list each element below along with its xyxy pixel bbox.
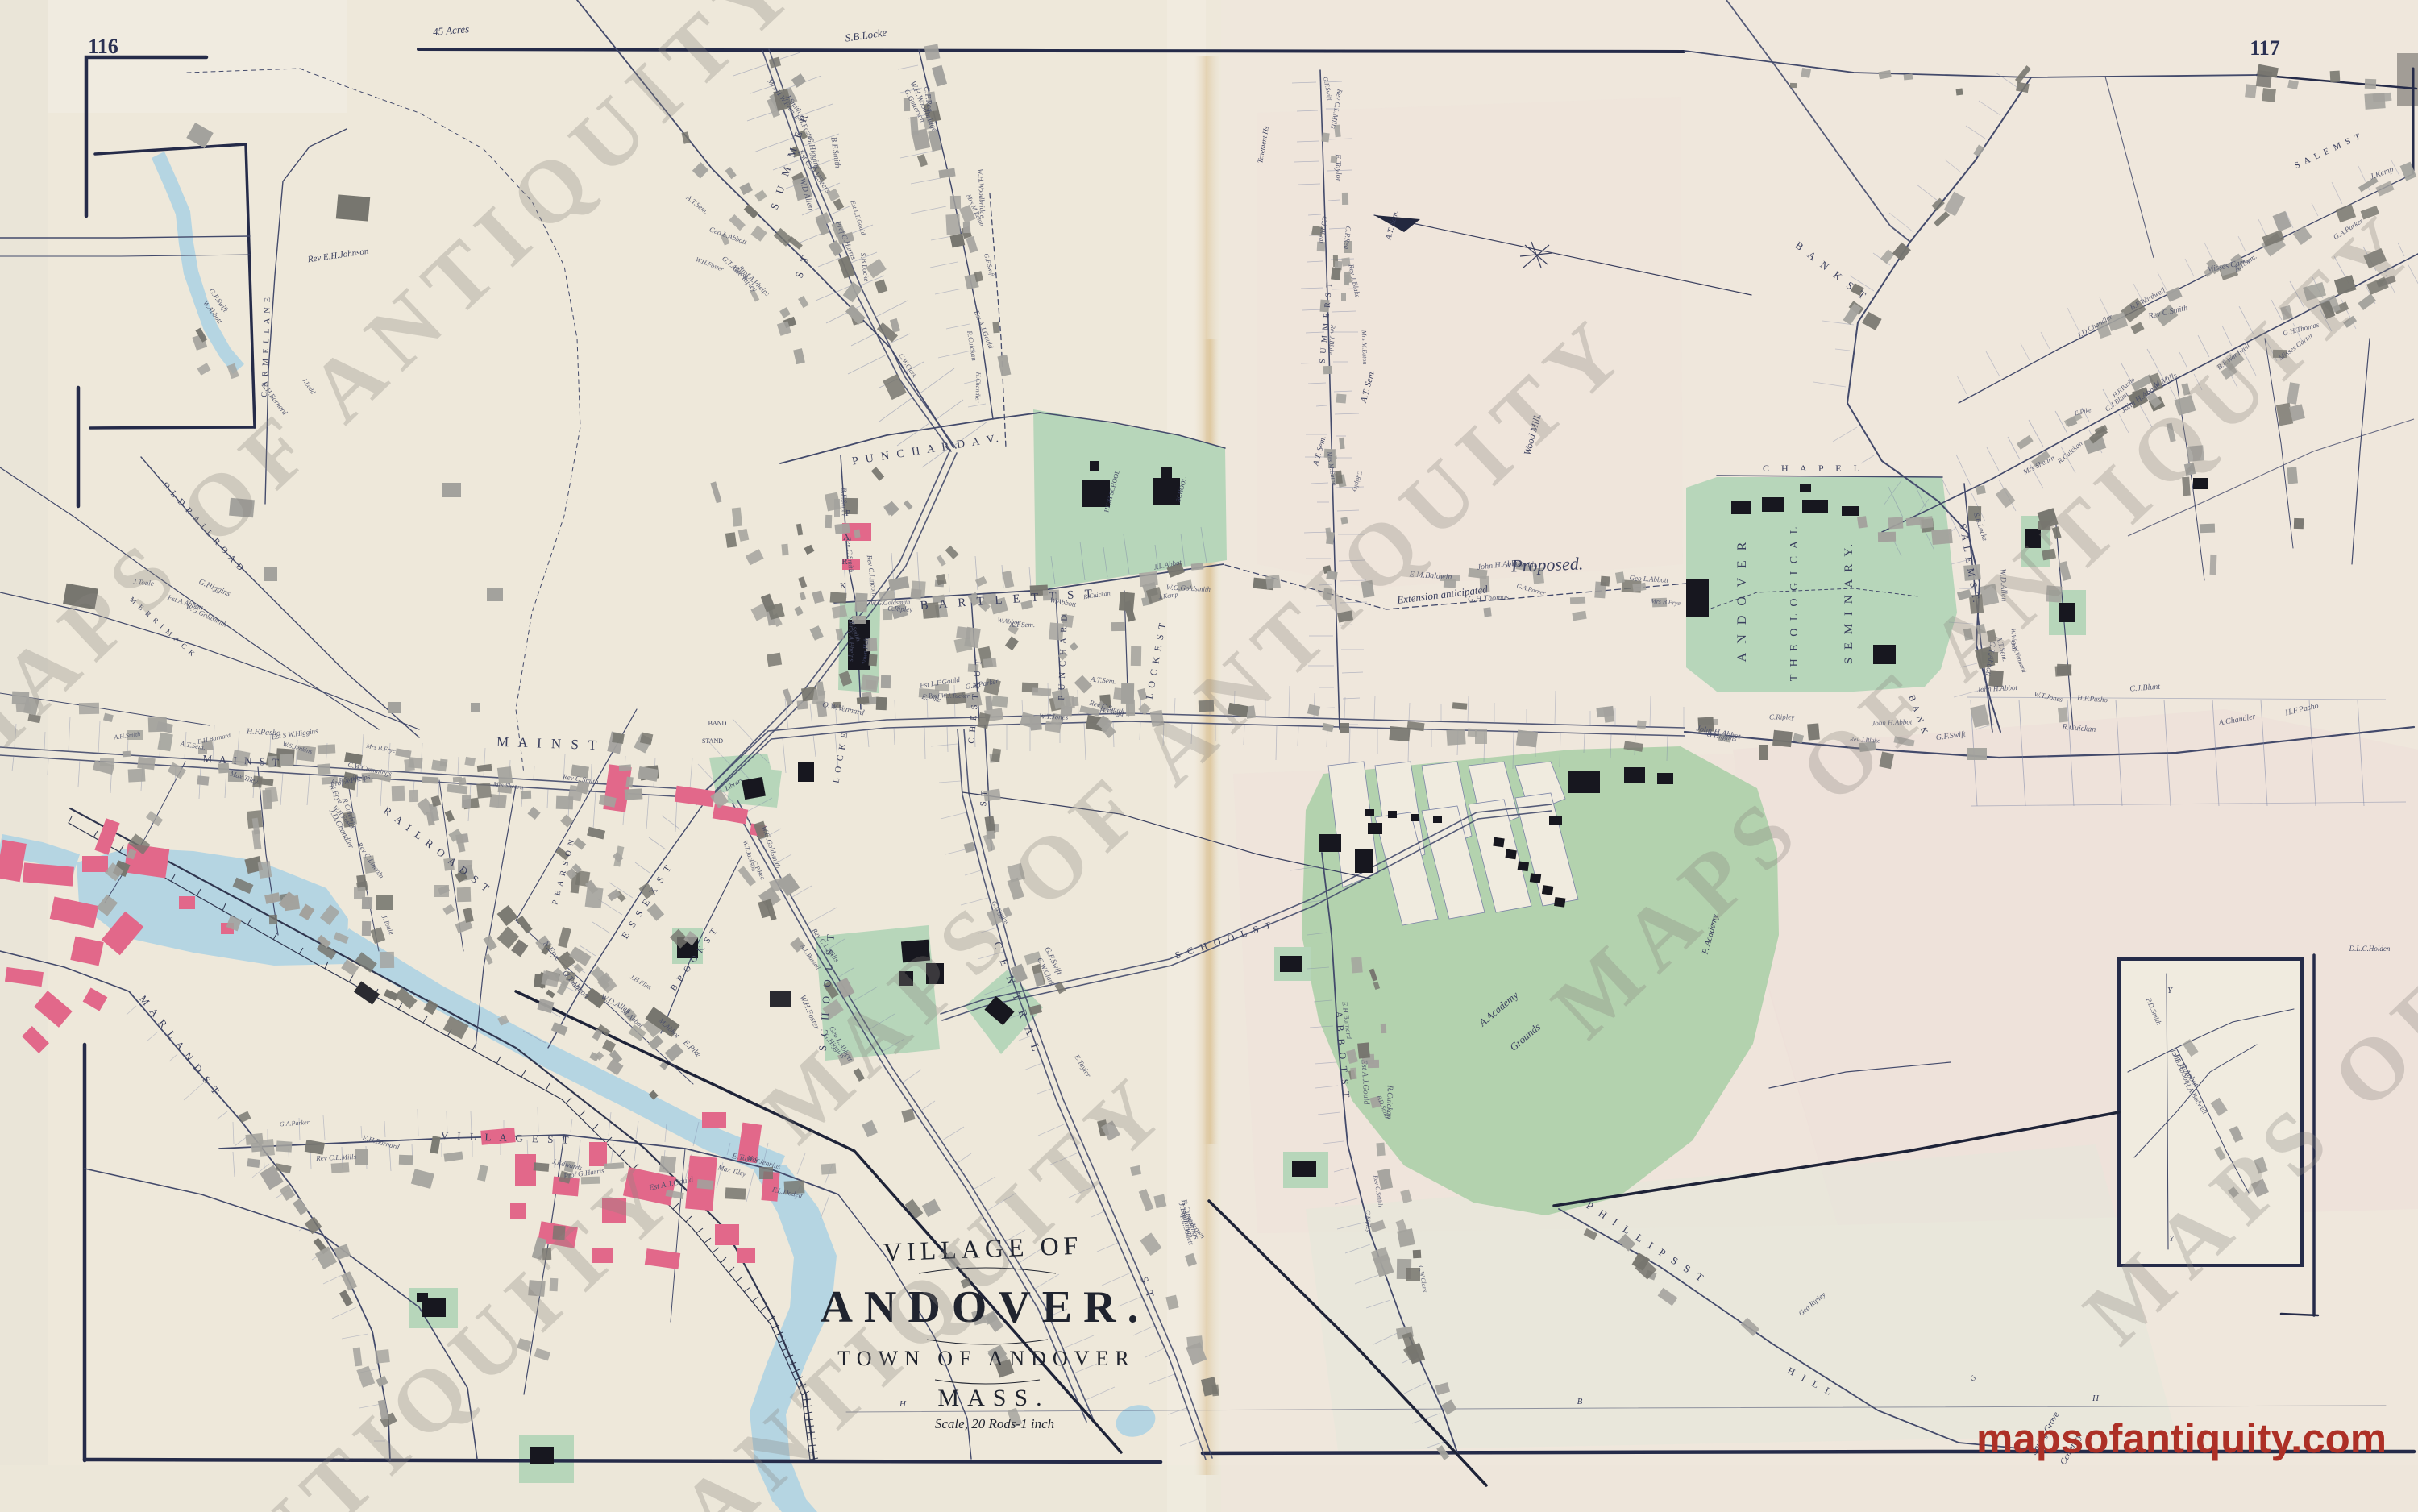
svg-text:STAND: STAND: [702, 737, 723, 745]
svg-text:Scale, 20 Rods-1 inch: Scale, 20 Rods-1 inch: [935, 1416, 1054, 1431]
svg-text:Rev C.L.Mills: Rev C.L.Mills: [315, 1153, 357, 1162]
svg-text:S E M I N A R Y.: S E M I N A R Y.: [1843, 542, 1855, 664]
svg-text:W.T.Jones: W.T.Jones: [1039, 712, 1069, 721]
svg-text:H: H: [2092, 1394, 2100, 1403]
svg-text:117: 117: [2250, 36, 2280, 60]
svg-text:S T: S T: [978, 789, 990, 807]
svg-text:BAND: BAND: [708, 720, 727, 727]
svg-text:C.Ripley: C.Ripley: [1365, 1210, 1373, 1232]
svg-text:mapsofantiquity.com: mapsofantiquity.com: [1976, 1415, 2387, 1461]
svg-text:C.Ripley: C.Ripley: [1769, 713, 1794, 721]
svg-text:D.L.C.Holden: D.L.C.Holden: [2349, 945, 2391, 953]
svg-text:K: K: [840, 581, 846, 591]
svg-text:C H A P E L: C H A P E L: [1763, 463, 1864, 474]
svg-text:Mrs M.Eaton: Mrs M.Eaton: [1361, 330, 1369, 365]
svg-text:A N D O V E R: A N D O V E R: [1735, 539, 1749, 663]
svg-text:H.Chandler: H.Chandler: [974, 371, 982, 403]
svg-text:B.F.Smith: B.F.Smith: [840, 488, 848, 516]
svg-text:116: 116: [88, 35, 118, 58]
svg-text:H: H: [899, 1399, 907, 1409]
svg-text:B: B: [1577, 1397, 1583, 1406]
svg-text:C.Ripley: C.Ripley: [887, 604, 913, 613]
svg-text:E.Taylor: E.Taylor: [1333, 153, 1343, 182]
svg-text:MASS.: MASS.: [937, 1385, 1049, 1411]
svg-text:T H E O L O G I C A L: T H E O L O G I C A L: [1789, 525, 1801, 681]
svg-text:R.Cuickan: R.Cuickan: [1385, 1084, 1394, 1119]
